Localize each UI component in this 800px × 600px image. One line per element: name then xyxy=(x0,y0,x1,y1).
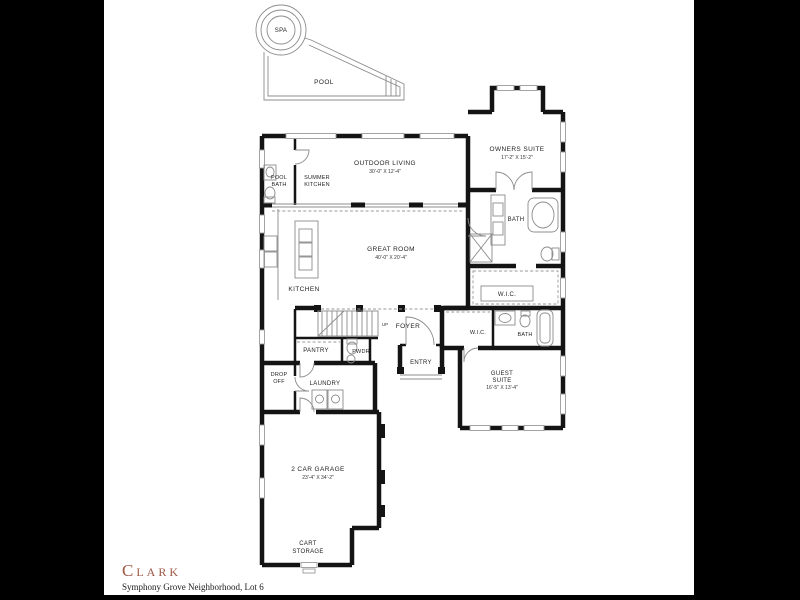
label-owners-suite: OWNERS SUITE xyxy=(490,146,545,153)
owners-tub xyxy=(528,198,558,232)
bottom-black-bar xyxy=(0,595,800,600)
sliding-door-wall xyxy=(262,203,468,208)
label-laundry: LAUNDRY xyxy=(310,381,341,387)
washer xyxy=(312,390,327,409)
label-pool-bath-2: BATH xyxy=(271,182,286,188)
kitchen-island xyxy=(295,221,318,278)
brand-block: Clark Symphony Grove Neighborhood, Lot 6 xyxy=(122,562,264,592)
dryer xyxy=(328,390,343,409)
range-appliance xyxy=(264,236,277,251)
left-black-bar xyxy=(0,0,104,600)
label-garage: 2 CAR GARAGE xyxy=(291,466,345,473)
owners-vanity xyxy=(491,195,505,245)
label-great-room-dims: 40'-0" X 20'-4" xyxy=(375,255,407,261)
label-guest-bath: BATH xyxy=(517,332,532,338)
label-outdoor-living-dims: 30'-0" X 12'-4" xyxy=(369,169,401,175)
label-summer-kitchen-1: SUMMER xyxy=(304,175,330,181)
guest-bath-fixtures xyxy=(495,310,553,346)
label-guest-wic: W.I.C. xyxy=(470,330,486,336)
owners-bath-fixtures xyxy=(470,195,559,262)
label-summer-kitchen-2: KITCHEN xyxy=(304,182,330,188)
label-guest-suite-dims: 16'-5" X 13'-4" xyxy=(486,385,518,391)
guest-toilet xyxy=(520,315,530,327)
label-guest-suite-1: GUEST xyxy=(491,371,513,377)
staircase xyxy=(318,311,378,336)
label-garage-dims: 23'-4" X 34'-2" xyxy=(302,475,334,481)
right-black-bar xyxy=(694,0,800,600)
label-entry: ENTRY xyxy=(410,360,432,366)
owners-toilet xyxy=(541,247,553,261)
label-powder: PWDR xyxy=(352,349,370,355)
label-guest-suite-2: SUITE xyxy=(492,378,511,384)
label-pool: POOL xyxy=(314,79,334,86)
label-owners-wic: W.I.C. xyxy=(498,292,516,298)
floor-plan-svg: SPA POOL xyxy=(104,0,694,595)
label-pantry: PANTRY xyxy=(303,348,329,354)
label-pool-bath-1: POOL xyxy=(271,175,287,181)
plan-subtitle: Symphony Grove Neighborhood, Lot 6 xyxy=(122,582,264,592)
entry-porch xyxy=(397,367,445,379)
pool-area: SPA POOL xyxy=(256,5,404,100)
builder-logo: Clark xyxy=(122,562,264,581)
label-owners-suite-dims: 17'-2" X 15'-2" xyxy=(501,155,533,161)
label-great-room: GREAT ROOM xyxy=(367,246,415,253)
label-drop-off-2: OFF xyxy=(273,379,285,385)
label-owners-bath: BATH xyxy=(508,217,525,223)
label-drop-off-1: DROP xyxy=(271,372,288,378)
label-kitchen: KITCHEN xyxy=(288,286,319,293)
label-spa: SPA xyxy=(275,28,287,34)
owners-wic-detail xyxy=(473,271,558,304)
label-stairs-up: UP xyxy=(382,322,388,327)
label-foyer: FOYER xyxy=(396,323,420,330)
label-cart-storage-1: CART xyxy=(299,541,316,547)
oven-appliance xyxy=(264,252,277,267)
guest-tub xyxy=(537,310,553,346)
plan-page: SPA POOL xyxy=(104,0,694,595)
label-outdoor-living: OUTDOOR LIVING xyxy=(354,160,416,167)
label-cart-storage-2: STORAGE xyxy=(292,549,323,555)
stage: SPA POOL xyxy=(0,0,800,600)
laundry-fixtures xyxy=(312,390,343,409)
